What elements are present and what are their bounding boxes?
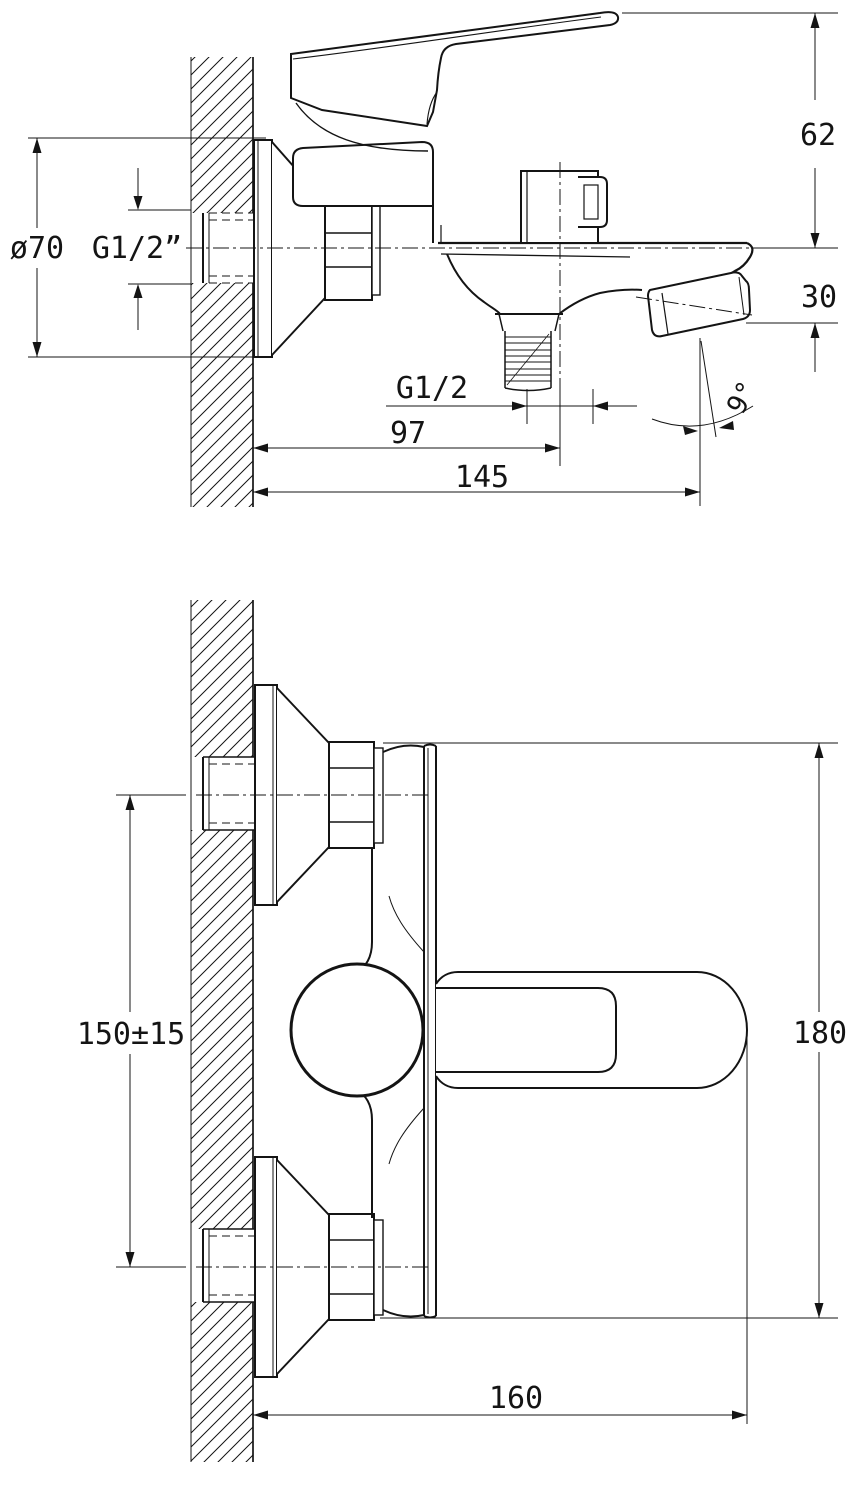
- faucet-dimension-drawing: ø70 G1/2” 62 30 G1/2 97 145 9°: [0, 0, 859, 1500]
- wall-section-front: [191, 600, 253, 1462]
- lever-handle-side: [291, 12, 618, 126]
- dim-label-overall-length: 160: [489, 1381, 543, 1416]
- dim-label-outlet-thread: G1/2: [396, 371, 468, 406]
- dim-label-wall-thread: G1/2”: [92, 231, 182, 266]
- dim-label-mounting-centers: 150±15: [77, 1017, 185, 1052]
- eccentric-connector-top: [203, 757, 255, 830]
- diverter-knob-side: [521, 171, 607, 243]
- eccentric-connector-bottom: [203, 1229, 255, 1302]
- front-view: 150±15 180 160: [77, 600, 847, 1462]
- shower-outlet-thread-side: [495, 314, 563, 391]
- drawing-sheet: ø70 G1/2” 62 30 G1/2 97 145 9°: [0, 0, 859, 1500]
- dim-label-spout-reach: 145: [455, 460, 509, 495]
- locknut-side: [325, 200, 372, 300]
- dim-label-spout-angle: 9°: [721, 376, 764, 419]
- handle-hub: [291, 964, 423, 1096]
- dim-label-escutcheon-diameter: ø70: [10, 231, 64, 266]
- spout-angle-dimension: [652, 338, 753, 506]
- lever-handle-front: [291, 964, 747, 1096]
- dim-label-handle-height: 62: [800, 118, 836, 153]
- dim-label-outlet-distance: 97: [390, 416, 426, 451]
- side-view: ø70 G1/2” 62 30 G1/2 97 145 9°: [10, 12, 838, 507]
- dim-label-spout-drop: 30: [801, 280, 837, 315]
- dim-label-overall-height: 180: [793, 1016, 847, 1051]
